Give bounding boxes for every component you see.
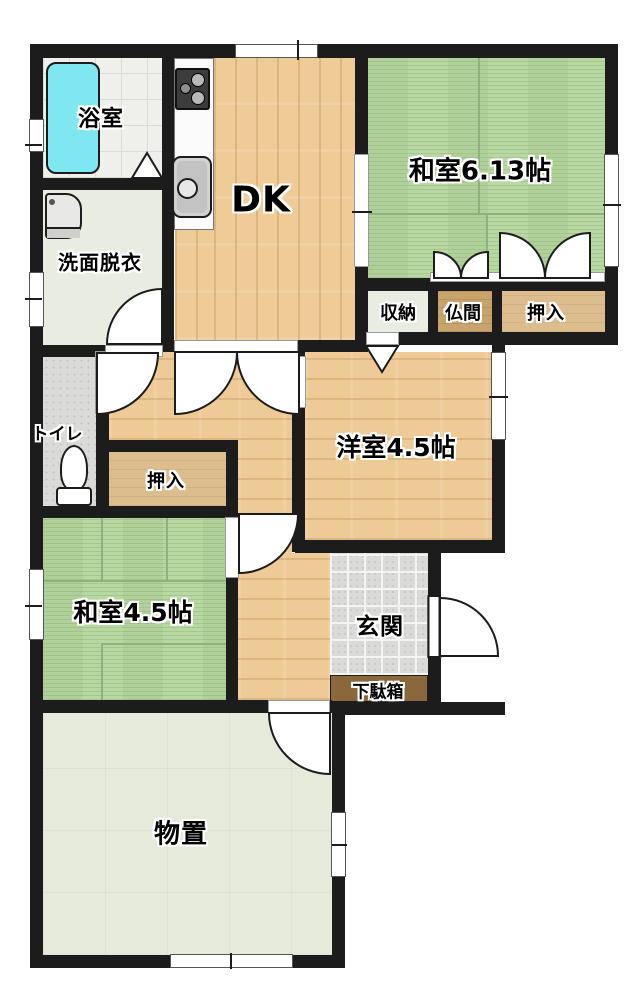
room-label-western-room: 洋室4.5帖 (336, 428, 455, 464)
room-label-storeroom: 物置 (154, 814, 208, 851)
room-label-toilet: トイレ (32, 420, 83, 445)
bath-folding-door-icon (132, 153, 162, 178)
door-arc-washroom (107, 289, 162, 344)
room-label-closet-left: 押入 (147, 467, 185, 493)
toilet-tank-icon (56, 487, 92, 506)
door-arc-toilet (97, 353, 158, 414)
label-shoe-cabinet: 下駄箱 (353, 678, 404, 703)
front-door-leaf (429, 596, 440, 657)
door-arc-hall (239, 514, 298, 573)
closet-door-petal (434, 252, 461, 278)
room-label-japanese-room-6: 和室6.13帖 (409, 151, 551, 188)
closet-door-petal (545, 233, 590, 278)
room-label-bathroom: 浴室 (78, 101, 124, 133)
toilet-bowl-icon (60, 445, 88, 491)
closet-door-petal (461, 252, 488, 278)
room-label-dk: DK (231, 180, 291, 221)
room-label-storage: 収納 (380, 299, 416, 325)
gas-stove-icon (175, 68, 210, 110)
door-arc-dk-right (237, 352, 299, 414)
room-label-washroom: 洗面脱衣 (58, 247, 142, 276)
closet-door-petal (500, 233, 545, 278)
kitchen-sink-icon (172, 156, 212, 218)
door-arc-dk-left (175, 352, 237, 414)
room-label-closet-right: 押入 (527, 299, 565, 325)
room-label-japanese-room-45: 和室4.5帖 (73, 593, 192, 629)
room-label-altar-room: 仏間 (445, 299, 481, 325)
storage-folding-door-icon (366, 346, 398, 372)
washbasin-icon (45, 193, 82, 239)
door-arc-storeroom (269, 713, 330, 774)
room-label-entrance: 玄関 (356, 607, 404, 641)
door-arc-front-entrance (440, 598, 498, 656)
floor-plan: 浴室 洗面脱衣 トイレ DK 和室6.13帖 収納 仏間 押入 洋室4.5帖 押… (0, 0, 628, 1000)
